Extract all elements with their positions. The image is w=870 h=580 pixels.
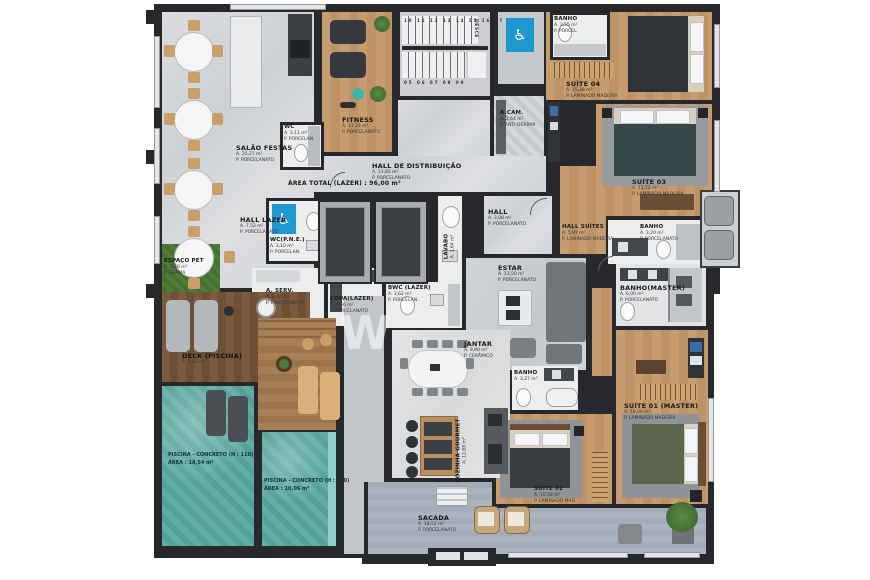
chair [212, 183, 223, 195]
room-label-suite-04: SUÍTE 04A. 15,38 m²P. LAMINADO MADEIRA [566, 80, 617, 100]
shelf-item [690, 342, 702, 352]
chair [188, 278, 200, 289]
plant [666, 502, 698, 532]
floorplan-canvas: 10 11 12 13 14 15 16 17 18 19 05 06 07 0… [0, 0, 870, 580]
pillow [542, 433, 568, 446]
nightstand [698, 108, 708, 118]
room-label-banho-02: BANHOA. 3,27 m² [514, 370, 538, 383]
chair-cushion [478, 512, 494, 526]
sink [552, 370, 561, 379]
chair [212, 45, 223, 57]
pool-lounger [228, 396, 248, 442]
chair [188, 20, 200, 31]
room-label-estar: ESTARA. 13,50 m²P. PORCELANATO [498, 264, 536, 284]
room-label-jantar: JANTARA. 9,90 m²P. CERÂMICO [464, 340, 493, 360]
kitchen-island [230, 16, 262, 108]
ac-unit [704, 196, 734, 226]
island-module [424, 458, 452, 470]
pool-lounger [206, 390, 226, 436]
stool [406, 420, 418, 432]
nightstand [574, 426, 584, 436]
window [154, 128, 160, 184]
room-label-banho-master: BANHO(MASTER)A. 6,00 m²P. PORCELANATO [620, 284, 685, 304]
room-label-salao-festas: SALÃO FESTASA. 25,27 m²P. PORCELANATO [236, 144, 292, 164]
window [644, 552, 700, 558]
watermark: W [340, 306, 391, 360]
chair [457, 388, 468, 396]
bed-blanket [614, 124, 696, 176]
cooktop [488, 444, 502, 464]
stool [406, 466, 418, 478]
tv-dresser [636, 360, 666, 374]
chair [188, 140, 200, 151]
toilet [620, 302, 635, 321]
pillow [620, 110, 654, 124]
tv-panel-detail [506, 296, 520, 306]
chair [427, 388, 438, 396]
chair [442, 340, 453, 348]
bed-blanket [628, 16, 688, 92]
round-table [174, 100, 214, 140]
toilet [656, 240, 671, 259]
chair [164, 183, 175, 195]
shelf-item [690, 356, 702, 365]
window [508, 552, 628, 558]
stool [302, 338, 314, 350]
planter-slat [436, 552, 460, 560]
side-table [224, 306, 234, 316]
exercise-ball [352, 88, 364, 100]
pillow [690, 22, 704, 52]
chair [212, 113, 223, 125]
plant [279, 359, 289, 369]
room-label-banho-topo: BANHOA. 3,55 m²P. PORCEL. [554, 16, 578, 35]
sofa [546, 262, 586, 342]
room-label-suite-03: SUÍTE 03A. 11,72 m²P. LAMINADO MADEIRA [632, 178, 683, 198]
stairs-down-label: DESCE [473, 19, 478, 38]
chair [442, 388, 453, 396]
sink [648, 270, 657, 279]
sink [618, 242, 628, 252]
ottoman [618, 524, 642, 544]
window [714, 24, 720, 88]
sun-lounger [298, 366, 318, 414]
table-centerpiece [430, 364, 440, 371]
island-module [424, 440, 452, 454]
nightstand [690, 490, 702, 502]
shower [448, 284, 460, 326]
chair [412, 340, 423, 348]
chair [400, 358, 408, 369]
bed-blanket [632, 424, 684, 484]
chair [188, 226, 200, 237]
planter-slat [464, 552, 488, 560]
room-label-cozinha-gourmet: COZINHA GOURMETA. 12,88 m² [456, 408, 469, 492]
wardrobe [636, 384, 698, 400]
armchair [510, 338, 536, 358]
vanity [554, 44, 606, 56]
tv-panel-detail [506, 310, 520, 320]
sun-lounger [194, 300, 218, 352]
ac-unit [704, 230, 734, 260]
room-hall-distribuicao-upper [398, 100, 490, 158]
chair [164, 113, 175, 125]
room-label-wc-pne: WC(P.N.E.)A. 3,10 m²P. PORCELAN. [270, 237, 305, 256]
treadmill [330, 52, 366, 78]
sink [628, 270, 637, 279]
room-label-hall-distribuicao: HALL DE DISTRIBUIÇÃOA. 13,85 m²P. PORCEL… [372, 162, 461, 182]
room-label-lavabo: LAVABOA. 2,64 m² [444, 211, 457, 281]
pillow [690, 54, 704, 84]
pool-right-label: PISCINA - CONCRETO (H : 120)ÁREA : 10,06… [264, 478, 349, 493]
plant [374, 16, 390, 32]
stool [406, 436, 418, 448]
shower [676, 224, 700, 260]
plant [370, 86, 386, 102]
laundry-counter [256, 270, 300, 282]
sink [430, 294, 444, 306]
sun-lounger [320, 372, 340, 420]
elevator-shaft [374, 200, 428, 284]
nightstand [602, 108, 612, 118]
toilet [294, 144, 308, 162]
window [708, 398, 714, 482]
pillow [684, 456, 698, 482]
treadmill [330, 20, 366, 44]
room-label-fitness: FITNESSA. 13,35 m²P. PORCELANATO [342, 116, 380, 136]
room-label-hall: HALLA. 3,08 m²P. PORCELANATO [488, 208, 526, 228]
window [154, 36, 160, 108]
pillow [514, 433, 540, 446]
headboard [698, 422, 706, 486]
stair-divider [402, 46, 488, 50]
dumbbell [340, 102, 356, 108]
round-table [174, 32, 214, 72]
room-label-banho-03: BANHOA. 3,20 m²P. PORCELANATO [640, 224, 678, 243]
elevator-shaft [318, 200, 372, 284]
pilaster [146, 284, 156, 298]
bed-blanket [510, 448, 570, 488]
chair [188, 72, 200, 83]
room-label-wc-lazer: WCA. 3,11 m²P. PORCELAN. [284, 124, 315, 143]
pool-left-label: PISCINA - CONCRETO (H : 110)ÁREA : 18,54… [168, 452, 253, 467]
shelf-item [550, 122, 558, 130]
room-label-bwc-lazer: BWC (LAZER)A. 3,62 m²P. PORCELAN. [388, 285, 431, 304]
stove [290, 40, 310, 58]
room-label-espaco-pet: ESPAÇO PETA. 3,50 m²P. GRAMA [164, 258, 204, 277]
pilaster [146, 10, 156, 24]
wardrobe [550, 62, 614, 78]
chair [188, 158, 200, 169]
stair-flight-lower [402, 52, 466, 78]
window [230, 4, 326, 10]
room-label-suite-01: SUÍTE 01 (MASTER)A. 18,00 m²P. LAMINADO … [624, 402, 698, 422]
room-label-hall-suites: HALL SUÍTESA. 5,97 m²P. LAMINADO MADEIRA [562, 224, 613, 243]
stool [320, 334, 332, 346]
chair [164, 45, 175, 57]
pillow [656, 110, 690, 124]
room-label-sacada: SACADAA. 18,52 m²P. PORCELANATO [418, 514, 456, 534]
stool [406, 452, 418, 464]
stair-numbers-lower: 05 06 07 08 09 [404, 80, 465, 85]
shelf-item [550, 106, 558, 116]
chair [412, 388, 423, 396]
round-table [174, 170, 214, 210]
toilet [516, 388, 531, 407]
window [154, 216, 160, 264]
room-label-hall-lazer: HALL LAZERA. 7,52 m²P. PORCELANATO [240, 216, 286, 236]
sofa-chaise [546, 344, 582, 364]
room-label-deck-piscina: DECK (PISCINA)A. 7,92 m² [182, 352, 242, 366]
sun-lounger [166, 300, 190, 352]
stair-landing [468, 52, 486, 78]
chair-cushion [508, 512, 524, 526]
window [714, 120, 720, 192]
room-corredor-suite-01 [592, 288, 612, 376]
room-label-a-cam: A.CAM.A. 2,64 m²P. ANTI-DERRAP. [500, 110, 536, 129]
chair [188, 210, 200, 221]
accessible-elevator-icon: ♿ [506, 18, 534, 52]
room-label-a-serv: A. SERV.A. 3,40 m²P. PORCELANATO [266, 288, 304, 307]
room-label-suite-02: SUÍTE 02A. 10,58 m²P. LAMINADO MAD. [534, 486, 577, 505]
chair [188, 88, 200, 99]
island-module [424, 422, 452, 436]
sink [488, 414, 502, 426]
pillow [684, 428, 698, 454]
chair [224, 251, 235, 263]
wardrobe [592, 452, 608, 502]
bathtub [546, 388, 578, 407]
chair [427, 340, 438, 348]
